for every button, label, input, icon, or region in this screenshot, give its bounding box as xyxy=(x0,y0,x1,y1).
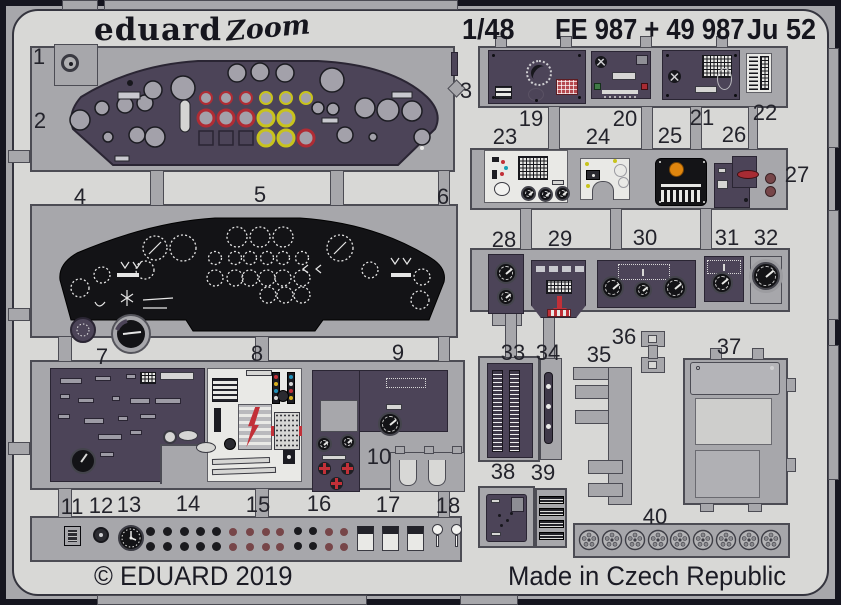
part-1-grommet xyxy=(61,54,79,72)
edge-tab xyxy=(97,595,367,605)
part-label-23: 23 xyxy=(493,126,517,148)
part-label-3: 3 xyxy=(460,80,472,102)
part-18-lever xyxy=(451,524,462,535)
part-39-plate xyxy=(539,496,564,504)
dotted-placard xyxy=(618,264,670,280)
part-37-door xyxy=(695,398,772,445)
part-label-22: 22 xyxy=(753,102,777,124)
ladder-strip xyxy=(509,370,520,452)
part-label-33: 33 xyxy=(501,342,525,364)
edge-tab xyxy=(8,442,30,455)
part-label-38: 38 xyxy=(491,461,515,483)
part-label-13: 13 xyxy=(117,494,141,516)
part-label-8: 8 xyxy=(251,343,263,365)
hanging-gauges xyxy=(71,315,150,353)
part-7-washer xyxy=(163,430,177,444)
red-cross-button xyxy=(341,462,354,475)
part-label-7: 7 xyxy=(96,346,108,368)
part-30-gauge xyxy=(634,281,652,299)
part-23-knob xyxy=(538,187,553,202)
part-label-16: 16 xyxy=(307,493,331,515)
part-9-cutout xyxy=(320,400,358,432)
part-39-plate xyxy=(539,508,564,516)
edge-strip xyxy=(828,345,839,480)
part-label-4: 4 xyxy=(74,186,86,208)
part-label-18: 18 xyxy=(436,495,460,517)
part-label-20: 20 xyxy=(613,108,637,130)
red-handle xyxy=(737,170,759,179)
part-27-grommet xyxy=(765,173,776,184)
part-label-26: 26 xyxy=(722,124,746,146)
part-40-rosettes xyxy=(573,523,790,558)
part-34-strip xyxy=(544,372,553,444)
part-label-24: 24 xyxy=(586,126,610,148)
part-label-12: 12 xyxy=(89,495,113,517)
part-18-lever xyxy=(432,524,443,535)
part-label-40: 40 xyxy=(643,506,667,528)
part-39-plate xyxy=(539,520,564,528)
part-label-15: 15 xyxy=(246,494,270,516)
photoetch-sheet-image: eduard Zoom 1/48 FE 987 + 49 987 Ju 52 ©… xyxy=(0,0,841,605)
red-checker-placard xyxy=(556,79,578,95)
part-17-placard xyxy=(407,526,424,551)
part-label-17: 17 xyxy=(376,494,400,516)
part-31-gauge xyxy=(711,272,733,294)
part-label-31: 31 xyxy=(715,227,739,249)
part-label-35: 35 xyxy=(587,344,611,366)
part-16-knobs-black xyxy=(294,527,302,535)
red-button xyxy=(641,83,648,90)
part-label-1: 1 xyxy=(33,46,45,68)
part-16-knobs-maroon xyxy=(325,528,333,536)
part-23-knob xyxy=(494,182,510,196)
part-15-knobs xyxy=(229,528,237,536)
part-23-knob xyxy=(521,186,536,201)
part-11-instrument xyxy=(64,526,81,546)
part-label-29: 29 xyxy=(548,228,572,250)
part-37-top-plate xyxy=(690,362,780,395)
terminal-plate xyxy=(274,412,300,450)
brand-logo: eduard xyxy=(94,12,222,48)
part-label-5: 5 xyxy=(254,184,266,206)
part-label-39: 39 xyxy=(531,462,555,484)
part-9-dial xyxy=(378,412,402,436)
part-23-knob xyxy=(555,186,570,201)
part-label-30: 30 xyxy=(633,227,657,249)
model-name: Ju 52 xyxy=(747,14,816,47)
part-label-37: 37 xyxy=(717,336,741,358)
part-27-grommet xyxy=(765,186,776,197)
part-7-knob xyxy=(70,448,96,474)
part-39-plate xyxy=(539,532,564,540)
part-label-10: 10 xyxy=(367,446,391,468)
part-24-cutout xyxy=(592,181,614,200)
part-9-knob xyxy=(340,434,356,450)
stub xyxy=(150,170,164,206)
part-label-2: 2 xyxy=(34,110,46,132)
edge-tab xyxy=(8,308,30,321)
part-14-knobs xyxy=(146,527,155,536)
green-button xyxy=(594,83,601,90)
scale-text: 1/48 xyxy=(462,14,515,47)
part-25-slats xyxy=(661,190,701,202)
edge-tab xyxy=(62,0,98,10)
dial-face-panel xyxy=(55,210,455,358)
part-13-clock xyxy=(117,524,145,552)
red-striped-placard xyxy=(547,309,571,317)
part-label-25: 25 xyxy=(658,125,682,147)
product-codes: FE 987 + 49 987 xyxy=(555,14,744,47)
part-label-27: 27 xyxy=(785,164,809,186)
gear-icon xyxy=(277,390,289,402)
red-cross-button xyxy=(318,462,331,475)
orange-lamp xyxy=(669,162,684,177)
part-label-11: 11 xyxy=(61,496,84,518)
part-label-34: 34 xyxy=(536,342,560,364)
part-28-gauge xyxy=(495,262,517,284)
part-label-19: 19 xyxy=(519,108,543,130)
part-label-9: 9 xyxy=(392,342,404,364)
edge-strip xyxy=(828,48,839,148)
part-label-28: 28 xyxy=(492,229,516,251)
main-instrument-panel xyxy=(63,57,450,169)
copyright-text: © EDUARD 2019 xyxy=(94,561,293,592)
part-12-gauge xyxy=(93,527,109,543)
edge-tab xyxy=(460,595,518,605)
part-28-gauge xyxy=(497,288,515,306)
edge-strip xyxy=(828,210,839,320)
speaker-grille xyxy=(518,156,548,180)
red-arrow xyxy=(557,296,562,308)
part-label-21: 21 xyxy=(690,107,714,129)
ladder-strip xyxy=(492,370,503,452)
red-cross-button xyxy=(330,477,343,490)
part-32-compass xyxy=(752,262,780,290)
part-17-placard xyxy=(357,526,374,551)
dotted-placard xyxy=(386,378,426,388)
made-in-text: Made in Czech Republic xyxy=(508,561,786,592)
part-17-placard xyxy=(382,526,399,551)
edge-tab xyxy=(8,150,30,163)
part-3-strip xyxy=(451,52,458,76)
part-9-knob xyxy=(316,436,332,452)
stub xyxy=(330,170,344,206)
part-label-6: 6 xyxy=(437,186,449,208)
edge-tab xyxy=(104,0,458,10)
part-label-36: 36 xyxy=(612,326,636,348)
part-30-gauge xyxy=(663,276,687,300)
part-label-32: 32 xyxy=(754,227,778,249)
part-label-14: 14 xyxy=(176,493,200,515)
part-30-gauge xyxy=(601,276,624,299)
